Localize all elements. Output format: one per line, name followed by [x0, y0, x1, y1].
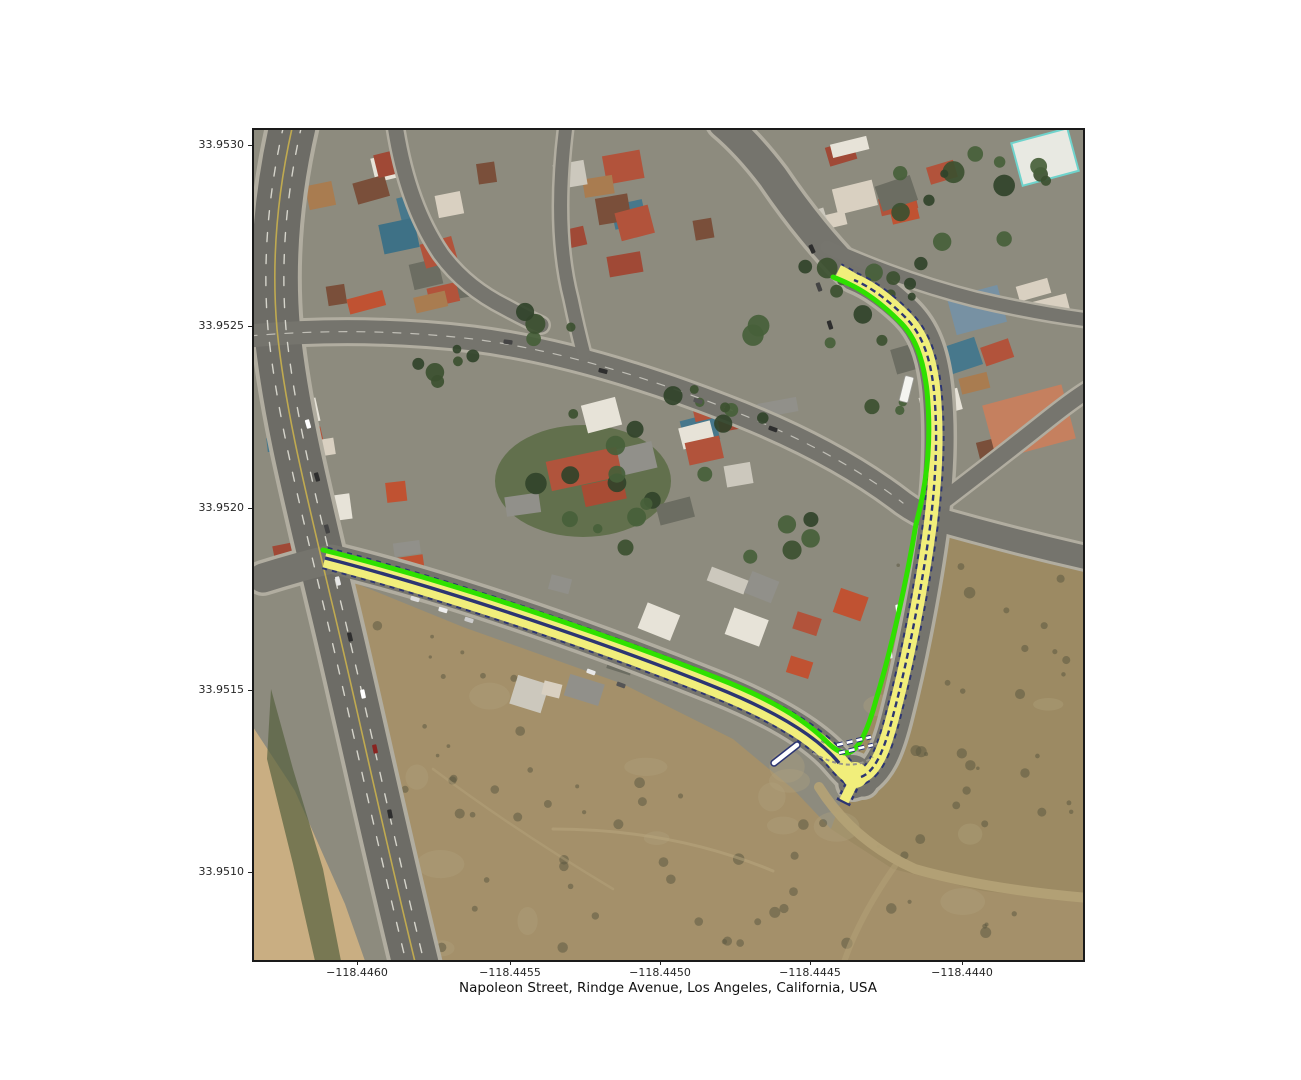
shrub [484, 877, 490, 883]
dirt-patch [405, 765, 428, 790]
satellite-map-image [253, 129, 1084, 961]
tree-canopy [561, 466, 579, 484]
y-tick-label: 33.9515 [180, 683, 244, 697]
x-tick-label: −118.4455 [465, 966, 555, 980]
shrub [515, 726, 525, 736]
tree-canopy [914, 257, 927, 270]
tree-canopy [825, 337, 836, 348]
tree-canopy [714, 415, 732, 433]
tree-canopy [690, 385, 699, 394]
tree-canopy [618, 540, 634, 556]
tree-canopy [994, 156, 1005, 167]
shrub [910, 745, 921, 756]
shrub [638, 797, 647, 806]
tree-canopy [891, 203, 910, 222]
shrub [915, 834, 925, 844]
dirt-patch [1033, 698, 1063, 711]
y-tick-label: 33.9530 [180, 138, 244, 152]
tree-canopy [640, 498, 652, 510]
shrub [460, 650, 464, 654]
tree-canopy [608, 466, 625, 483]
tree-canopy [830, 285, 843, 298]
shrub [430, 635, 434, 639]
tree-canopy [993, 175, 1015, 197]
tree-canopy [967, 146, 983, 162]
dirt-patch [624, 758, 667, 776]
shrub [544, 800, 552, 808]
shrub [779, 904, 788, 913]
map-caption: Napoleon Street, Rindge Avenue, Los Ange… [252, 980, 1084, 996]
tree-canopy [697, 467, 712, 482]
shrub [490, 785, 499, 794]
shrub [1057, 575, 1065, 583]
tree-canopy [663, 386, 682, 405]
shrub [513, 813, 522, 822]
tree-canopy [1030, 158, 1047, 175]
tree-canopy [933, 233, 951, 251]
shrub [789, 887, 798, 896]
tree-canopy [757, 412, 769, 424]
shrub [582, 810, 586, 814]
shrub [1041, 622, 1048, 629]
shrub [896, 563, 900, 567]
dirt-patch [517, 907, 537, 935]
tree-canopy [904, 278, 916, 290]
shrub [957, 748, 967, 758]
shrub [1020, 768, 1029, 777]
shrub [1015, 689, 1025, 699]
tree-canopy [627, 508, 646, 527]
shrub [1061, 672, 1065, 676]
tree-canopy [782, 540, 801, 559]
shrub [1012, 911, 1017, 916]
shrub [791, 852, 799, 860]
shrub [982, 924, 987, 929]
dirt-patch [958, 823, 982, 844]
dirt-patch [767, 817, 800, 835]
shrub [965, 760, 975, 770]
x-tick-label: −118.4445 [765, 966, 855, 980]
tree-canopy [996, 231, 1011, 246]
tree-canopy [895, 406, 904, 415]
tree-canopy [886, 271, 900, 285]
shrub [613, 819, 623, 829]
tree-canopy [743, 550, 757, 564]
shrub [568, 884, 574, 890]
shrub [736, 939, 744, 947]
tree-canopy [893, 166, 907, 180]
dirt-patch [769, 769, 810, 793]
x-tick-label: −118.4440 [917, 966, 1007, 980]
shrub [592, 912, 599, 919]
tree-canopy [431, 375, 444, 388]
shrub [1035, 754, 1040, 759]
shrub [980, 927, 991, 938]
tree-canopy [453, 345, 462, 354]
shrub [907, 900, 911, 904]
shrub [754, 918, 761, 925]
tree-canopy [853, 305, 872, 324]
y-tick-label: 33.9525 [180, 319, 244, 333]
shrub [634, 777, 645, 788]
shrub [886, 903, 897, 914]
shrub [819, 819, 827, 827]
shrub [559, 862, 569, 872]
shrub [945, 680, 951, 686]
shrub [527, 767, 533, 773]
tree-canopy [568, 409, 578, 419]
tree-canopy [412, 358, 424, 370]
tree-canopy [562, 511, 578, 527]
dirt-patch [469, 683, 510, 710]
tree-canopy [940, 170, 948, 178]
building-roof [692, 218, 714, 241]
shrub [769, 907, 780, 918]
building-roof [724, 462, 754, 488]
shrub [470, 812, 476, 818]
shrub [472, 906, 478, 912]
tree-canopy [627, 421, 644, 438]
shrub [1069, 810, 1073, 814]
building-roof [326, 284, 347, 306]
building-roof [385, 481, 407, 503]
shrub [958, 563, 965, 570]
shrub [694, 917, 703, 926]
figure-canvas: 33.9530 33.9525 33.9520 33.9515 33.9510 … [0, 0, 1301, 1080]
shrub [678, 793, 683, 798]
y-tick-label: 33.9510 [180, 865, 244, 879]
shrub [1037, 808, 1046, 817]
shrub [557, 942, 567, 952]
tree-canopy [516, 303, 534, 321]
shrub [659, 857, 669, 867]
shrub [422, 724, 427, 729]
tree-canopy [908, 293, 916, 301]
shrub [455, 809, 465, 819]
shrub [1067, 800, 1072, 805]
x-tick-label: −118.4450 [615, 966, 705, 980]
shrub [1062, 656, 1070, 664]
building-roof [476, 162, 497, 185]
tree-canopy [801, 529, 820, 548]
shrub [436, 754, 440, 758]
shrub [924, 752, 928, 756]
shrub [722, 939, 727, 944]
tree-canopy [453, 356, 463, 366]
shrub [480, 673, 486, 679]
tree-canopy [720, 402, 730, 412]
shrub [441, 674, 446, 679]
tree-canopy [798, 260, 812, 274]
tree-canopy [876, 335, 887, 346]
shrub [373, 621, 383, 631]
tree-canopy [923, 195, 934, 206]
tree-canopy [864, 399, 879, 414]
dirt-patch [940, 888, 985, 915]
tree-canopy [466, 349, 479, 362]
tree-canopy [742, 324, 763, 345]
shrub [429, 655, 432, 658]
tree-canopy [593, 524, 602, 533]
shrub [962, 786, 970, 794]
shrub [666, 874, 676, 884]
shrub [964, 587, 976, 599]
shrub [1021, 645, 1028, 652]
shrub [960, 688, 966, 694]
shrub [1052, 649, 1057, 654]
shrub [981, 820, 988, 827]
shrub [798, 819, 809, 830]
shrub [952, 801, 960, 809]
shrub [976, 766, 980, 770]
tree-canopy [606, 436, 625, 455]
tree-canopy [566, 322, 575, 331]
map-plot-area [252, 128, 1085, 962]
tree-canopy [778, 515, 796, 533]
shrub [447, 744, 451, 748]
tree-canopy [803, 512, 818, 527]
x-tick-label: −118.4460 [312, 966, 402, 980]
tree-canopy [525, 473, 547, 495]
dirt-patch [417, 850, 465, 878]
shrub [1003, 607, 1009, 613]
y-tick-label: 33.9520 [180, 501, 244, 515]
shrub [575, 784, 579, 788]
